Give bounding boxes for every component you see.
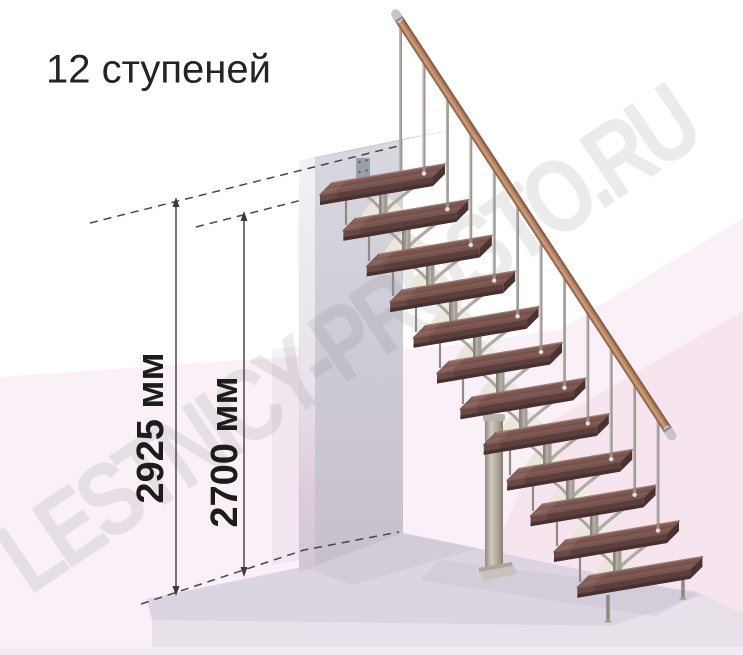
svg-text:2700 мм: 2700 мм bbox=[204, 376, 246, 527]
svg-text:12 ступеней: 12 ступеней bbox=[46, 48, 271, 92]
svg-text:2925 мм: 2925 мм bbox=[130, 352, 172, 503]
